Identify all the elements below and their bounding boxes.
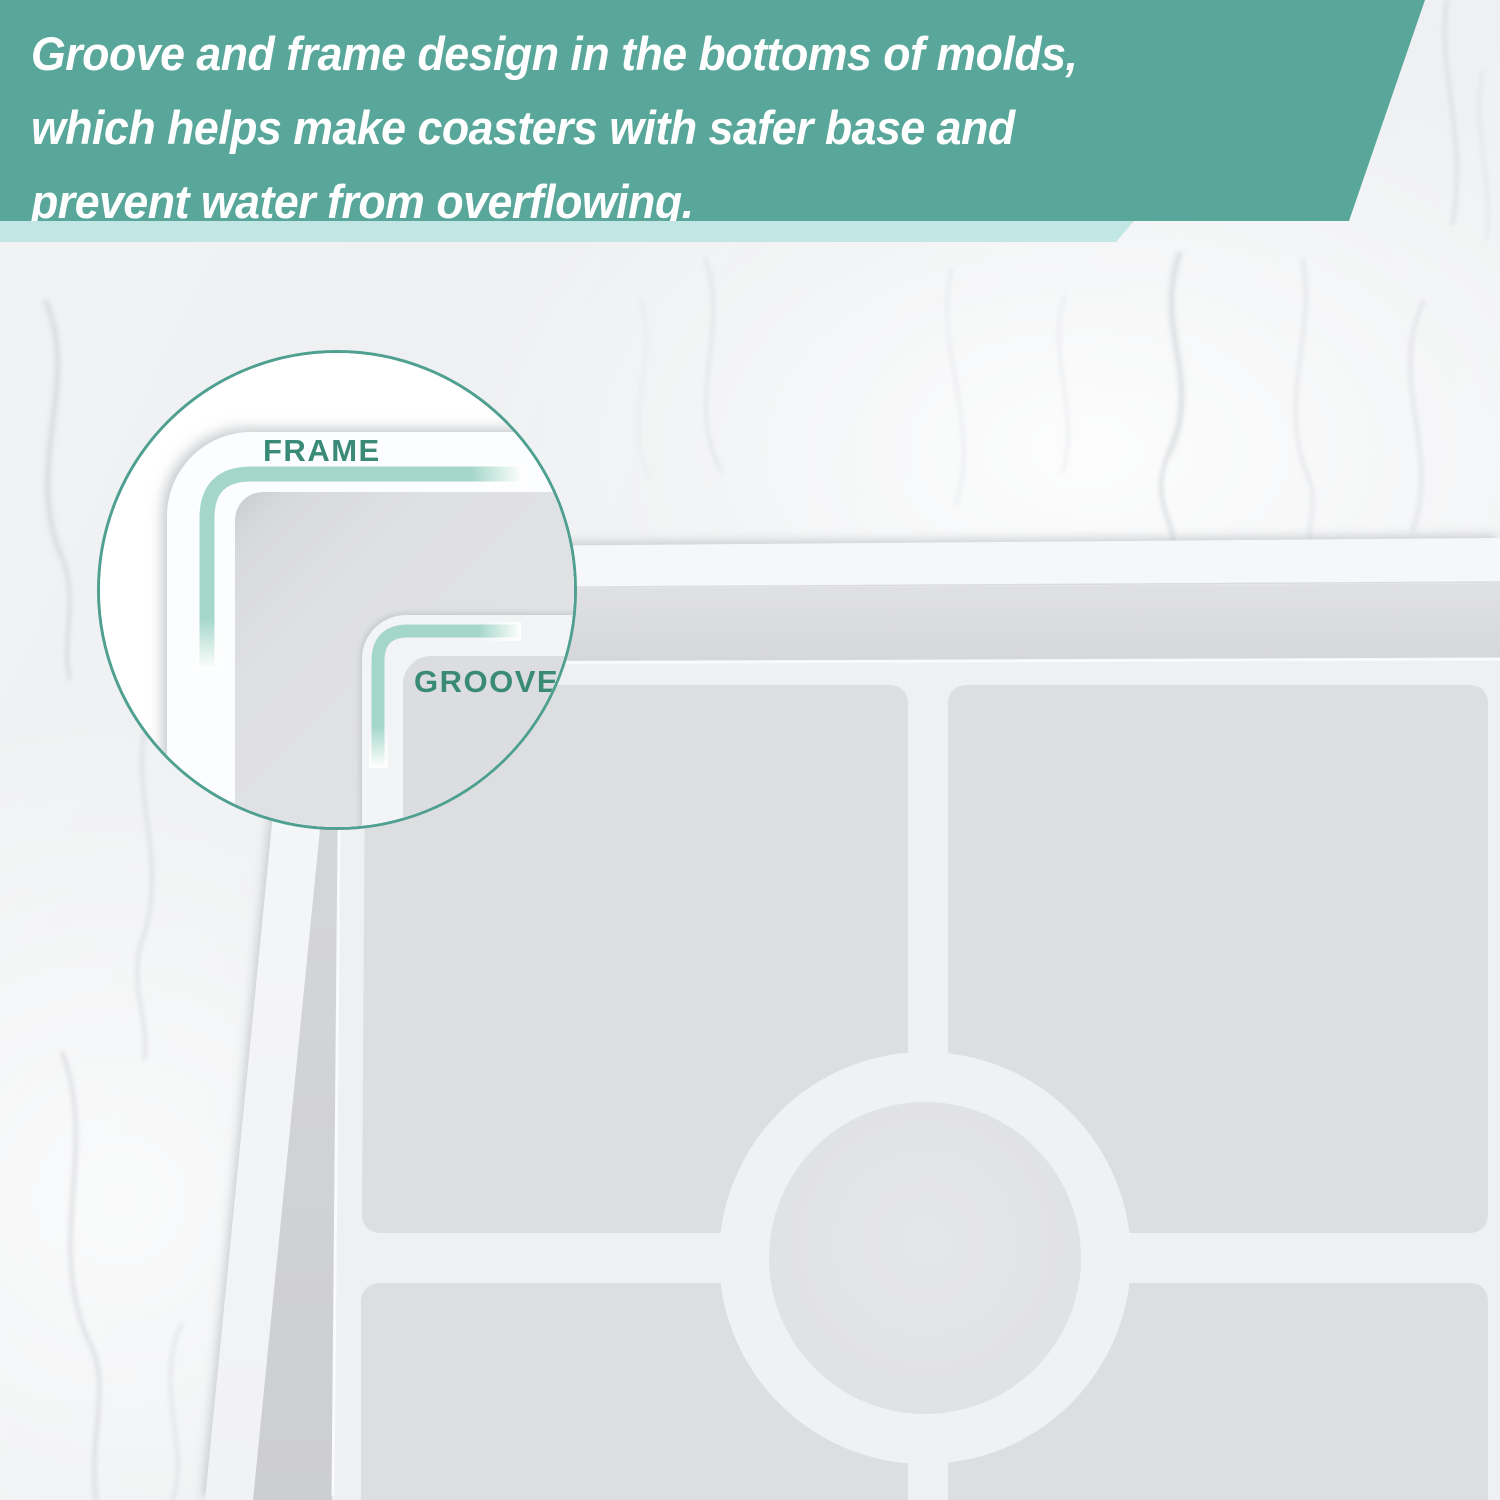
product-image: Groove and frame design in the bottoms o… <box>0 0 1500 1500</box>
banner-text: Groove and frame design in the bottoms o… <box>31 17 1133 239</box>
groove-line-fade-right <box>479 622 521 641</box>
banner-text-line: Groove and frame design in the bottoms o… <box>31 17 1077 91</box>
zoom-callout-circle: FRAME GROOVE <box>97 350 577 830</box>
groove-line-fade-bottom <box>369 726 388 768</box>
banner-accent-strip <box>0 221 1200 242</box>
mold-center-circle <box>769 1102 1081 1414</box>
frame-label: FRAME <box>263 433 381 469</box>
callout-mold-corner <box>97 350 577 830</box>
feature-banner: Groove and frame design in the bottoms o… <box>0 0 1500 221</box>
frame-line-fade-bottom <box>197 618 218 670</box>
groove-label: GROOVE <box>414 664 559 700</box>
frame-line-fade-right <box>471 464 523 485</box>
banner-text-line: which helps make coasters with safer bas… <box>31 91 1077 165</box>
